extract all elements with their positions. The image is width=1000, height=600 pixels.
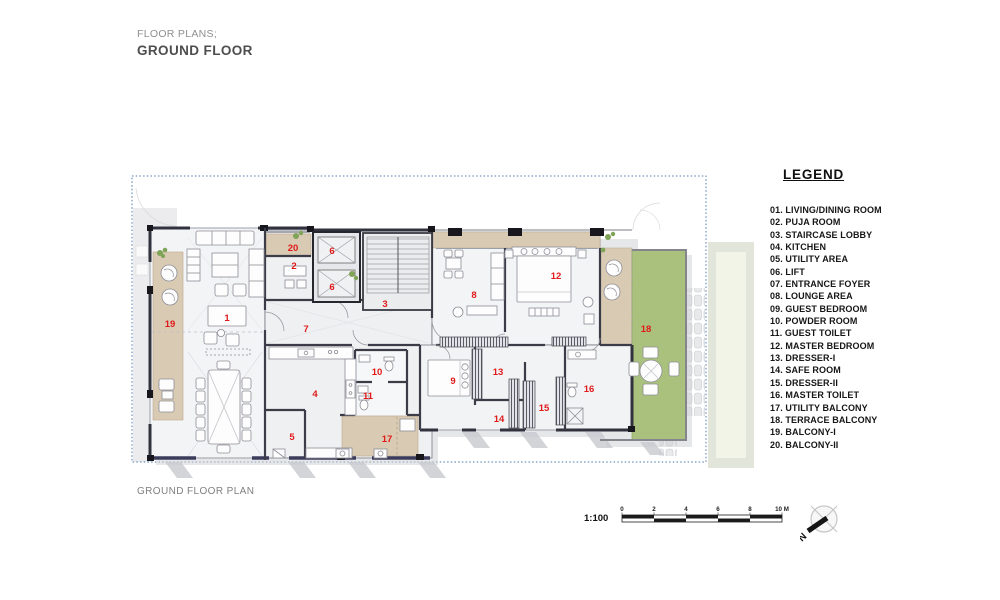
bed-bench <box>529 308 559 316</box>
wardrobe <box>472 349 482 399</box>
room-number-4: 4 <box>312 389 318 400</box>
room-number-6: 6 <box>329 246 334 257</box>
pouf <box>453 307 463 317</box>
legend-list: 01. LIVING/DINING ROOM02. PUJA ROOM03. S… <box>770 204 930 451</box>
room-number-20: 20 <box>288 243 299 254</box>
room-number-16: 16 <box>584 384 595 395</box>
plan-caption: GROUND FLOOR PLAN <box>137 486 254 497</box>
scale-tick-label: 10 M <box>775 506 789 513</box>
room-number-11: 11 <box>363 391 374 402</box>
console <box>552 337 586 346</box>
armchair <box>226 334 239 346</box>
scale-tick-label: 2 <box>653 506 657 513</box>
legend-item: 13. DRESSER-I <box>770 352 930 364</box>
title-kicker: FLOOR PLANS; <box>137 28 253 40</box>
washer <box>336 449 349 458</box>
balcony-chair <box>159 401 174 412</box>
utility-unit <box>400 419 415 431</box>
room-number-15: 15 <box>539 403 550 414</box>
legend-item: 15. DRESSER-II <box>770 377 930 389</box>
sink <box>359 355 370 362</box>
side-table <box>217 329 224 336</box>
wardrobe <box>509 379 519 428</box>
legend-item: 10. POWDER ROOM <box>770 315 930 327</box>
terrace-lawn <box>632 250 686 440</box>
legend-item: 18. TERRACE BALCONY <box>770 414 930 426</box>
wardrobe <box>556 377 565 425</box>
legend-item: 02. PUJA ROOM <box>770 216 930 228</box>
legend-item: 20. BALCONY-II <box>770 439 930 451</box>
legend-item: 16. MASTER TOILET <box>770 389 930 401</box>
scale-tick-label: 0 <box>621 506 625 513</box>
planter <box>606 260 622 276</box>
room-number-5: 5 <box>289 432 295 443</box>
floor-plan-sheet: FLOOR PLANS; GROUND FLOOR LEGEND 01. LIV… <box>0 0 1000 600</box>
stool <box>584 314 594 324</box>
wc <box>385 361 393 371</box>
planter <box>604 284 620 300</box>
room-number-12: 12 <box>551 271 562 282</box>
north-label: N <box>800 531 809 544</box>
room-number-9: 9 <box>450 376 455 387</box>
room-number-3: 3 <box>382 299 387 310</box>
tv-bench <box>467 306 497 315</box>
nightstand <box>505 250 513 258</box>
room-number-19: 19 <box>165 319 176 330</box>
armchair <box>204 332 217 344</box>
floor-plan-drawing: 12345667891011121314151617181920 <box>120 160 770 490</box>
planter <box>162 289 178 305</box>
page-title: GROUND FLOOR <box>137 43 253 58</box>
nightstand <box>578 250 586 258</box>
planter <box>161 265 177 281</box>
scale-tick-label: 4 <box>685 506 689 513</box>
room-number-7: 7 <box>303 324 308 335</box>
washer <box>374 449 387 458</box>
balcony-chair <box>159 379 174 390</box>
legend-item: 05. UTILITY AREA <box>770 253 930 265</box>
bed <box>517 256 571 302</box>
title-block: FLOOR PLANS; GROUND FLOOR <box>137 28 253 58</box>
outdoor-chair <box>643 384 658 395</box>
table <box>446 258 461 269</box>
north-arrow-icon: N <box>800 497 848 545</box>
legend-item: 14. SAFE ROOM <box>770 364 930 376</box>
legend-item: 03. STAIRCASE LOBBY <box>770 229 930 241</box>
legend-item: 17. UTILITY BALCONY <box>770 402 930 414</box>
legend-item: 09. GUEST BEDROOM <box>770 303 930 315</box>
room-number-18: 18 <box>641 324 652 335</box>
scale-tick-label: 6 <box>717 506 721 513</box>
legend-panel: LEGEND 01. LIVING/DINING ROOM02. PUJA RO… <box>770 166 930 451</box>
wc <box>568 387 576 397</box>
pool <box>716 252 746 458</box>
legend-item: 19. BALCONY-I <box>770 426 930 438</box>
legend-item: 08. LOUNGE AREA <box>770 290 930 302</box>
scale-ratio: 1:100 <box>584 513 608 524</box>
balcony-table <box>162 391 173 399</box>
sofa <box>196 231 254 245</box>
legend-title: LEGEND <box>783 167 844 182</box>
legend-item: 06. LIFT <box>770 266 930 278</box>
room-number-10: 10 <box>372 367 383 378</box>
room-number-13: 13 <box>493 367 504 378</box>
outdoor-chair <box>629 362 639 376</box>
chaise <box>249 249 264 297</box>
sofa <box>491 253 504 300</box>
room-number-17: 17 <box>382 434 393 445</box>
room-number-6: 6 <box>329 282 334 293</box>
vanity <box>568 350 596 359</box>
legend-item: 07. ENTRANCE FOYER <box>770 278 930 290</box>
scale-tick-label: 8 <box>749 506 753 513</box>
wardrobe <box>440 337 508 347</box>
legend-item: 11. GUEST TOILET <box>770 327 930 339</box>
room-number-14: 14 <box>494 414 505 425</box>
room-number-8: 8 <box>471 290 476 301</box>
wardrobe <box>523 381 535 428</box>
chair <box>583 297 593 307</box>
stair-lift-core <box>313 232 432 310</box>
legend-item: 01. LIVING/DINING ROOM <box>770 204 930 216</box>
armchair <box>215 284 228 296</box>
room-number-1: 1 <box>224 313 230 324</box>
legend-item: 04. KITCHEN <box>770 241 930 253</box>
door-arc <box>633 203 660 230</box>
room-number-2: 2 <box>291 261 296 272</box>
armchair <box>233 284 246 296</box>
legend-item: 12. MASTER BEDROOM <box>770 340 930 352</box>
outdoor-chair <box>669 362 679 376</box>
outdoor-chair <box>643 347 658 358</box>
